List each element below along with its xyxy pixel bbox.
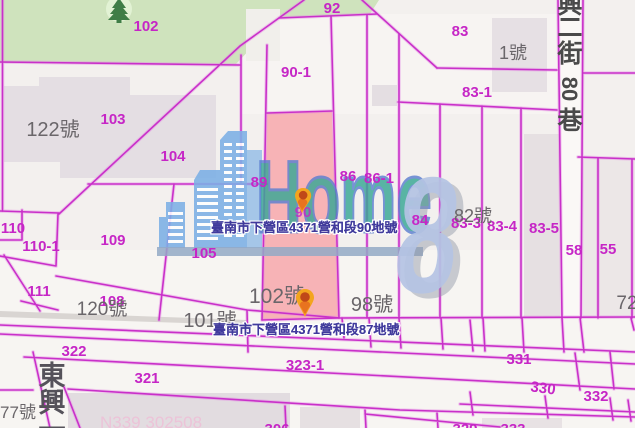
svg-text:臺南市下營區4371營和段90地號: 臺南市下營區4371營和段90地號 [211, 220, 397, 235]
svg-text:東: 東 [39, 361, 66, 391]
svg-text:N339 302508: N339 302508 [100, 413, 202, 428]
svg-text:二: 二 [557, 14, 582, 42]
svg-text:77號: 77號 [0, 403, 36, 422]
svg-text:86-1: 86-1 [364, 170, 394, 187]
svg-text:55: 55 [600, 241, 617, 258]
svg-text:321: 321 [134, 370, 159, 387]
svg-text:83-1: 83-1 [462, 84, 492, 101]
svg-text:86: 86 [340, 168, 357, 185]
svg-text:84: 84 [412, 212, 429, 229]
svg-text:巷: 巷 [556, 106, 583, 135]
svg-text:一: 一 [39, 415, 66, 428]
svg-text:83-5: 83-5 [529, 220, 559, 237]
svg-text:111: 111 [27, 283, 50, 300]
svg-text:110: 110 [1, 220, 25, 237]
svg-text:92: 92 [324, 0, 341, 17]
svg-text:興: 興 [39, 388, 66, 418]
svg-text:306: 306 [264, 421, 289, 428]
svg-text:120號: 120號 [77, 298, 128, 320]
svg-text:104: 104 [160, 148, 186, 165]
svg-text:331: 331 [506, 351, 531, 368]
svg-text:街: 街 [556, 39, 582, 68]
svg-text:臺南市下營區4371營和段87地號: 臺南市下營區4371營和段87地號 [213, 322, 399, 337]
svg-text:109: 109 [100, 232, 125, 249]
svg-text:322: 322 [61, 343, 86, 360]
svg-text:98號: 98號 [351, 293, 393, 316]
svg-text:333: 333 [500, 421, 525, 428]
svg-text:72: 72 [616, 293, 635, 314]
svg-text:90-1: 90-1 [281, 64, 311, 81]
svg-text:110-1: 110-1 [22, 238, 60, 255]
svg-text:82號: 82號 [454, 206, 492, 226]
svg-text:330: 330 [529, 378, 556, 398]
svg-text:103: 103 [100, 111, 125, 128]
svg-text:102: 102 [133, 18, 158, 35]
svg-text:80: 80 [557, 77, 582, 101]
svg-text:89: 89 [251, 174, 268, 191]
svg-text:323-1: 323-1 [286, 357, 324, 374]
svg-text:58: 58 [566, 242, 583, 259]
svg-text:105: 105 [191, 245, 216, 262]
svg-text:332: 332 [583, 388, 608, 405]
svg-text:122號: 122號 [26, 118, 79, 141]
svg-text:83: 83 [452, 23, 469, 40]
svg-text:1號: 1號 [499, 43, 527, 63]
svg-text:329: 329 [452, 421, 477, 428]
